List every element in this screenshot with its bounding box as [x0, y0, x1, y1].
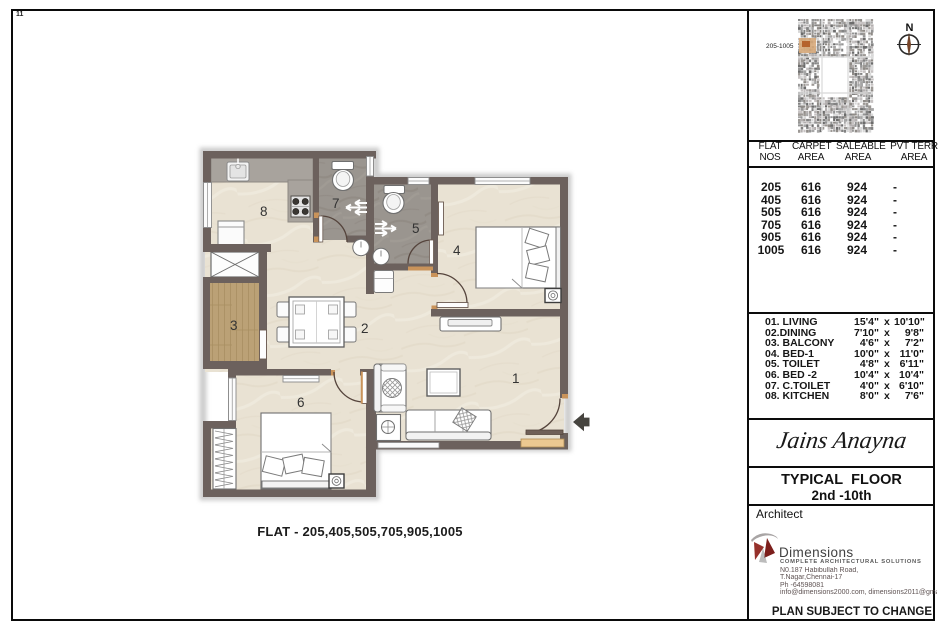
- svg-text:2: 2: [361, 321, 369, 336]
- svg-text:1: 1: [512, 371, 520, 386]
- svg-text:7: 7: [332, 196, 340, 211]
- svg-text:4: 4: [453, 243, 461, 258]
- svg-text:N: N: [906, 22, 914, 34]
- svg-text:6: 6: [297, 395, 305, 410]
- svg-text:8: 8: [260, 204, 268, 219]
- svg-text:5: 5: [412, 221, 420, 236]
- svg-text:3: 3: [230, 318, 238, 333]
- svg-text:205-1005: 205-1005: [766, 43, 794, 50]
